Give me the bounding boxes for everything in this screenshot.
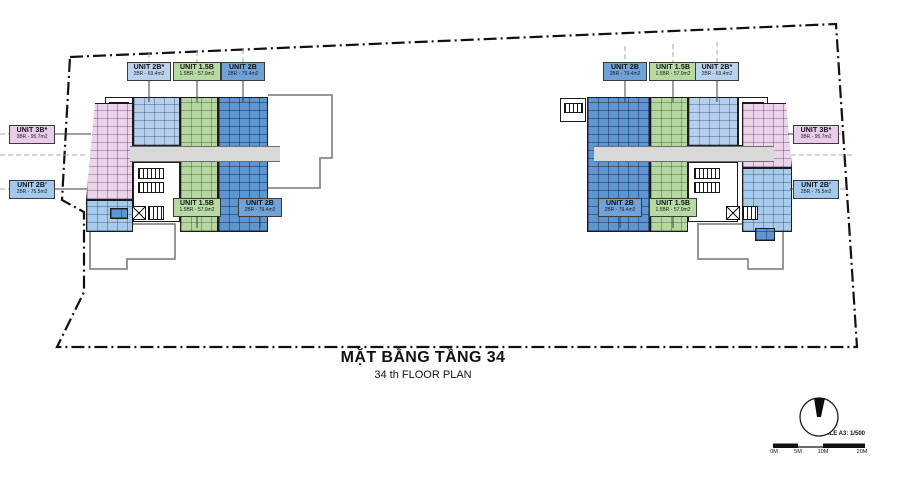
unit-area: 1.5BR - 57.0m2 [651, 208, 695, 214]
unit-area: 2BR - 75.5m2 [795, 190, 837, 196]
unit-label: UNIT 1.5B1.5BR - 57.0m2 [649, 62, 697, 81]
unit-label: UNIT 2B2BR - 79.4m2 [238, 198, 282, 217]
unit-area: 2BR - 79.4m2 [240, 208, 280, 214]
unit-area: 2BR - 79.4m2 [605, 72, 645, 78]
unit-area: 1.5BR - 57.0m2 [175, 208, 219, 214]
unit-label: UNIT 2B'2BR - 75.5m2 [9, 180, 55, 199]
north-arrow-icon [800, 398, 838, 436]
scale-bar [773, 444, 865, 449]
unit-label: UNIT 2B'2BR - 75.5m2 [793, 180, 839, 199]
unit-area: 2BR - 69.4m2 [129, 72, 169, 78]
unit-label: UNIT 2B*2BR - 69.4m2 [127, 62, 171, 81]
unit-area: 1.5BR - 57.0m2 [651, 72, 695, 78]
unit-label: UNIT 1.5B1.5BR - 57.0m2 [173, 198, 221, 217]
unit-area: 3BR - 95.7m2 [11, 135, 53, 141]
unit-label: UNIT 2B2BR - 79.4m2 [603, 62, 647, 81]
unit-label: UNIT 1.5B1.5BR - 57.0m2 [649, 198, 697, 217]
unit-label: UNIT 3B*3BR - 95.7m2 [793, 125, 839, 144]
floor-plan-page: UNIT 2B*2BR - 69.4m2 UNIT 1.5B1.5BR - 57… [0, 0, 900, 500]
unit-label: UNIT 2B2BR - 79.4m2 [598, 198, 642, 217]
unit-label: UNIT 1.5B1.5BR - 57.0m2 [173, 62, 221, 81]
unit-label: UNIT 3B*3BR - 95.7m2 [9, 125, 55, 144]
unit-area: 3BR - 95.7m2 [795, 135, 837, 141]
unit-area: 1.5BR - 57.0m2 [175, 72, 219, 78]
unit-area: 2BR - 79.4m2 [600, 208, 640, 214]
unit-label: UNIT 2B2BR - 79.4m2 [221, 62, 265, 81]
unit-area: 2BR - 75.5m2 [11, 190, 53, 196]
unit-label: UNIT 2B*2BR - 69.4m2 [695, 62, 739, 81]
unit-area: 2BR - 79.4m2 [223, 72, 263, 78]
unit-area: 2BR - 69.4m2 [697, 72, 737, 78]
